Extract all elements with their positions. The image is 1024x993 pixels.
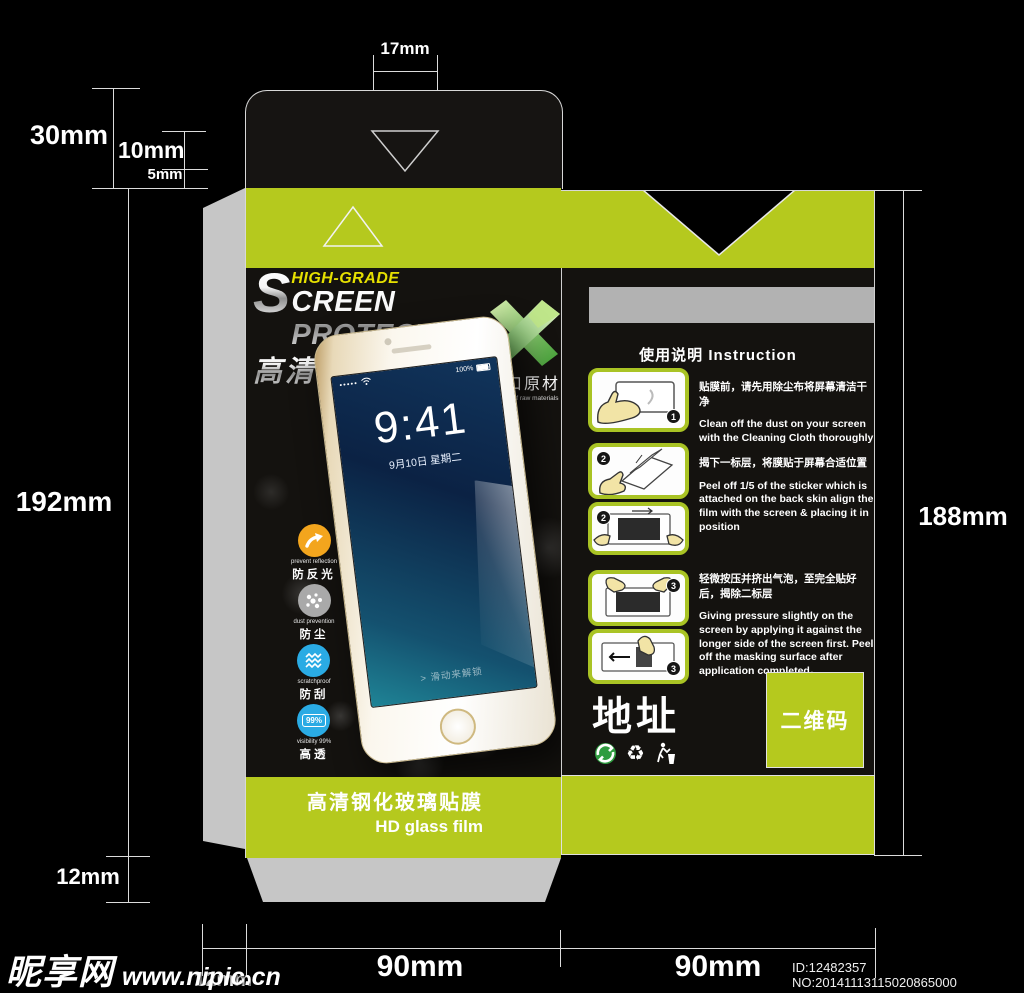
dim-tab-width: 17mm — [362, 40, 448, 57]
dim-back-width: 90mm — [658, 952, 778, 982]
slide-to-unlock-label: > 滑动来解锁 — [368, 657, 534, 691]
top-flap-front — [245, 188, 561, 268]
recycle-icon: ♻ — [626, 743, 645, 764]
anti-reflection-icon — [298, 524, 331, 557]
fold-triangle-down-icon — [370, 129, 440, 173]
bottom-tuck-flap — [247, 858, 561, 902]
dust-prevention-icon — [298, 584, 331, 617]
tidyman-icon — [654, 742, 676, 765]
eco-icons-row: ♻ — [594, 742, 676, 765]
address-label: 地址 — [592, 684, 680, 742]
step3-text: 轻微按压并挤出气泡，至完全贴好后，揭除二标层 Giving pressure s… — [699, 572, 875, 679]
hang-tab — [245, 90, 563, 189]
green-point-icon — [594, 742, 617, 765]
brand-initial: S — [253, 270, 290, 316]
dim-front-width: 90mm — [360, 952, 480, 982]
watermark: 昵享网 www.nipic.cn — [6, 944, 281, 993]
signal-dots: ●●●●● — [339, 380, 358, 387]
step-cn: 揭下一标层，将膜贴于屏幕合适位置 — [699, 456, 875, 471]
step1-illustration: 1 — [588, 368, 689, 432]
phone-home-button — [438, 707, 478, 747]
instruction-title: 使用说明 Instruction — [562, 344, 874, 365]
step-en: Peel off 1/5 of the sticker which is att… — [699, 480, 875, 535]
bottom-bar-front: 高清钢化玻璃贴膜 HD glass film — [245, 777, 561, 858]
dim-flap-total: 30mm — [28, 122, 110, 149]
product-name-en: HD glass film — [307, 817, 483, 837]
glue-flap-left — [203, 188, 245, 849]
feature-en-label: dust prevention — [293, 619, 334, 625]
phone-earpiece — [391, 344, 431, 354]
step2-illustration-b: 2 — [588, 502, 689, 555]
dim-bottom-flap: 12mm — [52, 866, 124, 888]
dim-front-height: 192mm — [8, 488, 120, 516]
feature-cn-label: 防尘 — [300, 626, 329, 642]
visibility-icon: 99% — [297, 704, 330, 737]
protector-film-peel — [461, 474, 538, 675]
phone-front-camera — [384, 338, 392, 346]
feature-en-label: prevent reflection — [291, 559, 337, 565]
step-number-badge: 1 — [666, 409, 681, 424]
step-en: Clean off the dust on your screen with t… — [699, 418, 875, 445]
feature-cn-label: 防刮 — [299, 686, 328, 702]
scratchproof-icon — [297, 644, 330, 677]
barcode-placeholder — [589, 287, 874, 323]
top-flap-back — [561, 190, 875, 268]
front-panel: S HIGH-GRADE CREEN PROTECTOR 高清保护膜 — [245, 268, 561, 777]
phone-status-bar: ●●●●● 100% — [331, 357, 497, 389]
step-number-badge: 2 — [596, 451, 611, 466]
watermark-site-name: 昵享网 — [6, 944, 114, 993]
feature-anti-reflection: prevent reflection 防反光 — [291, 524, 337, 584]
step-cn: 轻微按压并挤出气泡，至完全贴好后，揭除二标层 — [699, 572, 875, 601]
step-number-badge: 3 — [666, 578, 681, 593]
qr-code-placeholder: 二维码 — [766, 672, 864, 768]
thumb-notch — [561, 191, 875, 269]
step3-illustration-a: 3 — [588, 570, 689, 626]
image-id-text: ID:12482357 NO:20141113115020865000 — [792, 960, 1024, 990]
back-panel: 使用说明 Instruction 1 贴膜前，请先用除尘布将屏幕清洁干净 Cle… — [561, 268, 875, 775]
step-en: Giving pressure slightly on the screen b… — [699, 610, 875, 678]
feature-en-label: visibility 99% — [297, 739, 331, 745]
fold-triangle-up-icon — [322, 205, 384, 248]
feature-en-label: scratchproof — [297, 679, 330, 685]
feature-high-visibility: 99% visibility 99% 高透 — [297, 704, 331, 764]
dim-back-height: 188mm — [912, 503, 1014, 529]
phone-screen: ●●●●● 100% 9:41 9月10日 星期二 > 滑动来解锁 — [330, 356, 537, 708]
step2-text: 揭下一标层，将膜贴于屏幕合适位置 Peel off 1/5 of the sti… — [699, 456, 875, 534]
step1-text: 贴膜前，请先用除尘布将屏幕清洁干净 Clean off the dust on … — [699, 380, 875, 446]
visibility-badge: 99% — [302, 714, 326, 727]
step3-illustration-b: 3 — [588, 629, 689, 684]
feature-scratchproof: scratchproof 防刮 — [297, 644, 330, 704]
feature-list: prevent reflection 防反光 dust prevention 防… — [278, 524, 350, 764]
bottom-bar-back — [561, 775, 875, 855]
watermark-site-url: www.nipic.cn — [122, 963, 281, 993]
step2-illustration-a: 2 — [588, 443, 689, 499]
dim-flap-mid: 10mm — [118, 139, 182, 162]
feature-cn-label: 防反光 — [292, 566, 336, 582]
product-name-cn: 高清钢化玻璃贴膜 — [307, 786, 483, 815]
feature-dust-prevention: dust prevention 防尘 — [293, 584, 334, 644]
battery-icon — [476, 363, 491, 372]
dim-flap-small: 5mm — [144, 167, 186, 182]
feature-cn-label: 高透 — [299, 746, 328, 762]
battery-percent: 100% — [455, 365, 474, 374]
wifi-icon — [360, 377, 371, 386]
step-number-badge: 2 — [596, 510, 611, 525]
step-number-badge: 3 — [666, 661, 681, 676]
step-cn: 贴膜前，请先用除尘布将屏幕清洁干净 — [699, 380, 875, 409]
packaging-dieline-canvas: S HIGH-GRADE CREEN PROTECTOR 高清保护膜 — [0, 0, 1024, 993]
